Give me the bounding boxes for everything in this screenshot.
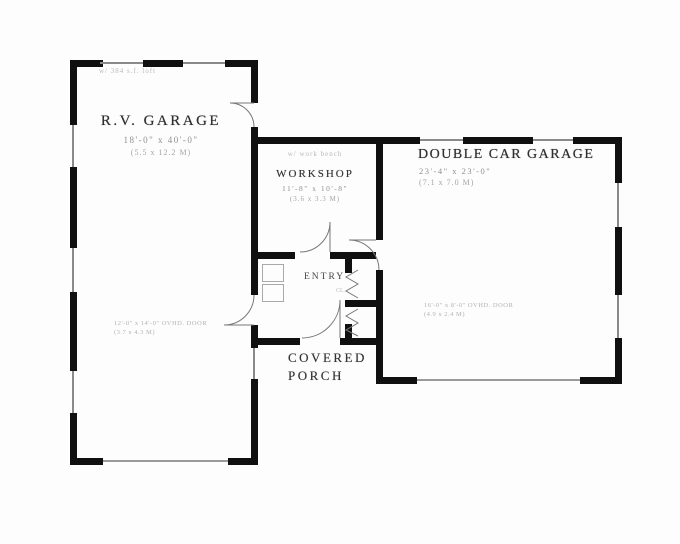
double-garage-metric: (7.1 x 7.0 M) [419,178,474,187]
closet-label: CL. [336,288,345,294]
workshop-title: WORKSHOP [276,168,354,180]
double-garage-title: DOUBLE CAR GARAGE [418,147,594,163]
rv-door-label-line2: (3.7 x 4.3 M) [114,329,155,336]
rv-garage-title: R.V. GARAGE [101,113,221,130]
double-garage-dims: 23'-4" x 23'-0" [419,166,491,176]
bifold-door-marks [346,309,358,336]
garage-door-label-line1: 16'-0" x 8'-0" OVHD. DOOR [424,302,513,309]
door-swing-arc [224,295,254,325]
garage-door-label-line2: (4.9 x 2.4 M) [424,311,465,318]
rv-garage-note: w/ 384 s.f. loft [99,67,156,75]
porch-label-line2: PORCH [288,368,344,384]
door-swing-arc [349,240,379,270]
workshop-metric: (3.6 x 3.3 M) [290,195,340,203]
door-swing-arc [302,300,340,338]
floor-plan-canvas: w/ 384 s.f. loft R.V. GARAGE 18'-0" x 40… [0,0,680,544]
rv-garage-dims: 18'-0" x 40'-0" [123,135,198,145]
porch-label-line1: COVERED [288,350,367,366]
rv-door-label-line1: 12'-0" x 14'-0" OVHD. DOOR [114,320,207,327]
workshop-note: w/ work bench [288,150,343,158]
workshop-dims: 11'-8" x 10'-8" [282,184,348,193]
door-swing-arc [230,103,254,127]
bifold-door-marks [346,270,358,298]
rv-garage-metric: (5.5 x 12.2 M) [131,148,191,157]
entry-label: ENTRY [304,272,345,282]
door-swing-arc [300,222,330,252]
